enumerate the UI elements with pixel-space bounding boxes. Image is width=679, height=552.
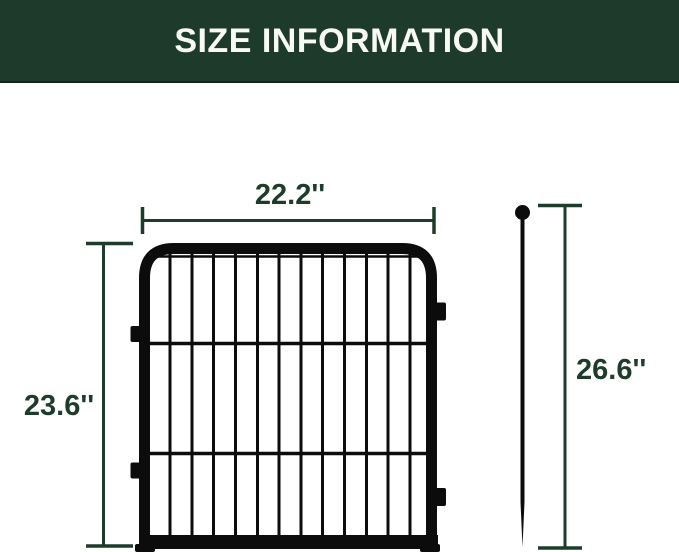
- width-dimension-line: [143, 207, 435, 234]
- size-information-infographic: SIZE INFORMATION 22.2'' 23.6'' 26.6'': [0, 0, 679, 552]
- fence-connector-tabs: [131, 303, 447, 507]
- ground-stake-graphic: [515, 205, 530, 547]
- stake-ball-top: [515, 205, 530, 220]
- page-title: SIZE INFORMATION: [174, 24, 504, 58]
- stake-height-label: 26.6'': [576, 356, 646, 385]
- fence-vertical-bars: [170, 250, 410, 538]
- fence-foot-left: [135, 544, 155, 552]
- fence-bottom-bar: [139, 535, 438, 549]
- fence-foot-right: [420, 544, 440, 552]
- panel-height-label: 23.6'': [4, 392, 114, 421]
- panel-width-label: 22.2'': [190, 181, 390, 210]
- stake-shaft: [521, 218, 525, 547]
- banner: SIZE INFORMATION: [0, 0, 679, 83]
- fence-panel-graphic: [131, 249, 447, 552]
